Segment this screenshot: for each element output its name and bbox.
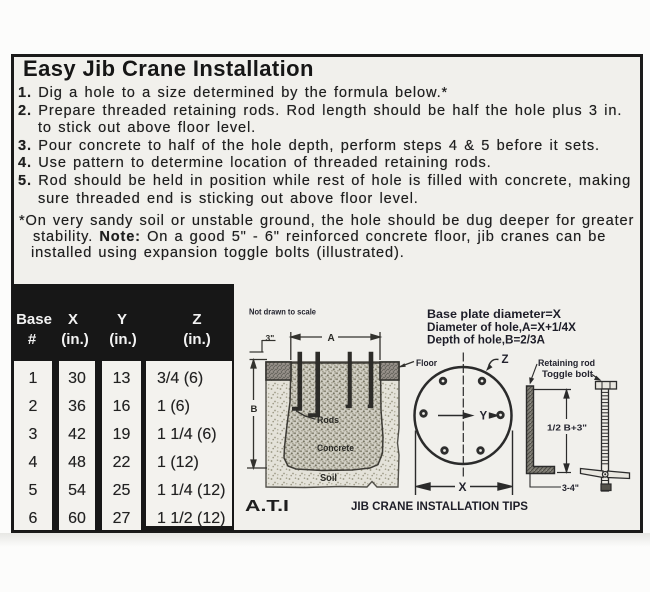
svg-text:A: A bbox=[328, 333, 335, 344]
svg-text:1/2 B+3": 1/2 B+3" bbox=[547, 423, 587, 433]
svg-text:Not drawn to scale: Not drawn to scale bbox=[249, 307, 316, 317]
svg-text:Floor: Floor bbox=[416, 358, 437, 369]
svg-text:Rods: Rods bbox=[317, 415, 339, 426]
svg-text:A.T.I: A.T.I bbox=[245, 498, 289, 515]
svg-text:Diameter of hole,A=X+1/4X: Diameter of hole,A=X+1/4X bbox=[427, 321, 576, 334]
svg-text:Soil: Soil bbox=[320, 472, 337, 484]
svg-text:3": 3" bbox=[266, 333, 275, 343]
svg-text:Z: Z bbox=[502, 354, 509, 366]
svg-text:Depth of hole,B=2/3A: Depth of hole,B=2/3A bbox=[427, 334, 546, 347]
svg-text:Y: Y bbox=[480, 411, 488, 423]
svg-text:X: X bbox=[459, 480, 467, 494]
svg-text:JIB CRANE INSTALLATION TIPS: JIB CRANE INSTALLATION TIPS bbox=[351, 499, 528, 513]
svg-text:Retaining rod: Retaining rod bbox=[538, 358, 595, 368]
svg-text:Toggle bolt: Toggle bolt bbox=[542, 369, 593, 379]
svg-text:Concrete: Concrete bbox=[317, 443, 354, 454]
svg-text:3-4": 3-4" bbox=[562, 483, 579, 493]
svg-text:B: B bbox=[251, 404, 258, 415]
svg-text:Base plate diameter=X: Base plate diameter=X bbox=[427, 308, 561, 321]
